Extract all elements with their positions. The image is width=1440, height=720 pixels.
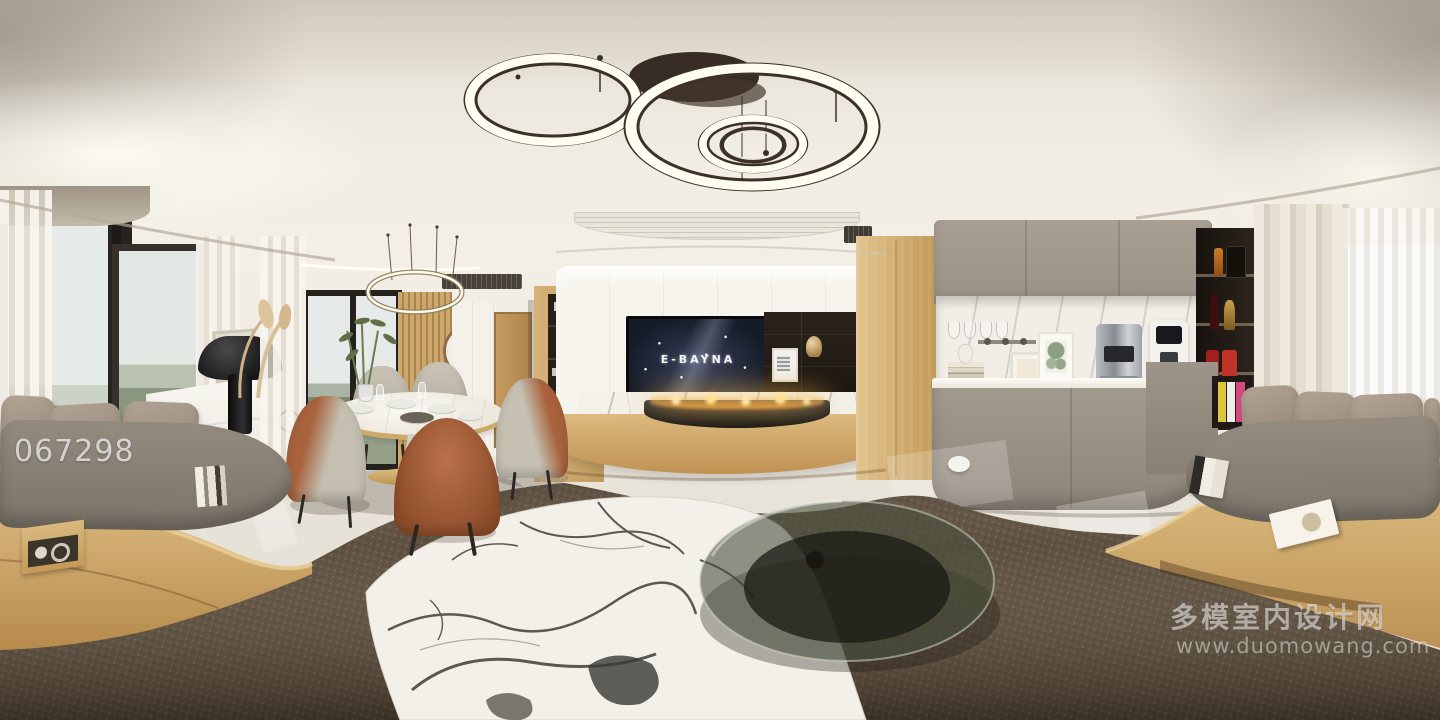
place-setting (458, 412, 482, 420)
panorama-room-photo: E-BAYNA (0, 0, 1440, 720)
place-setting (386, 399, 416, 408)
books-on-platform (195, 465, 234, 507)
photo-id-watermark: 067298 (14, 434, 135, 469)
wine-glass (376, 384, 384, 400)
wine-glass (418, 382, 426, 398)
centerpiece-bowl (400, 412, 434, 423)
site-name-watermark: 多模室内设计网 (1170, 596, 1387, 636)
glass-coffee-table (700, 501, 1000, 672)
glass-vase (358, 384, 374, 402)
standing-books (1189, 455, 1229, 498)
site-url-watermark: www.duomowang.com (1176, 634, 1430, 658)
place-setting (428, 404, 456, 413)
